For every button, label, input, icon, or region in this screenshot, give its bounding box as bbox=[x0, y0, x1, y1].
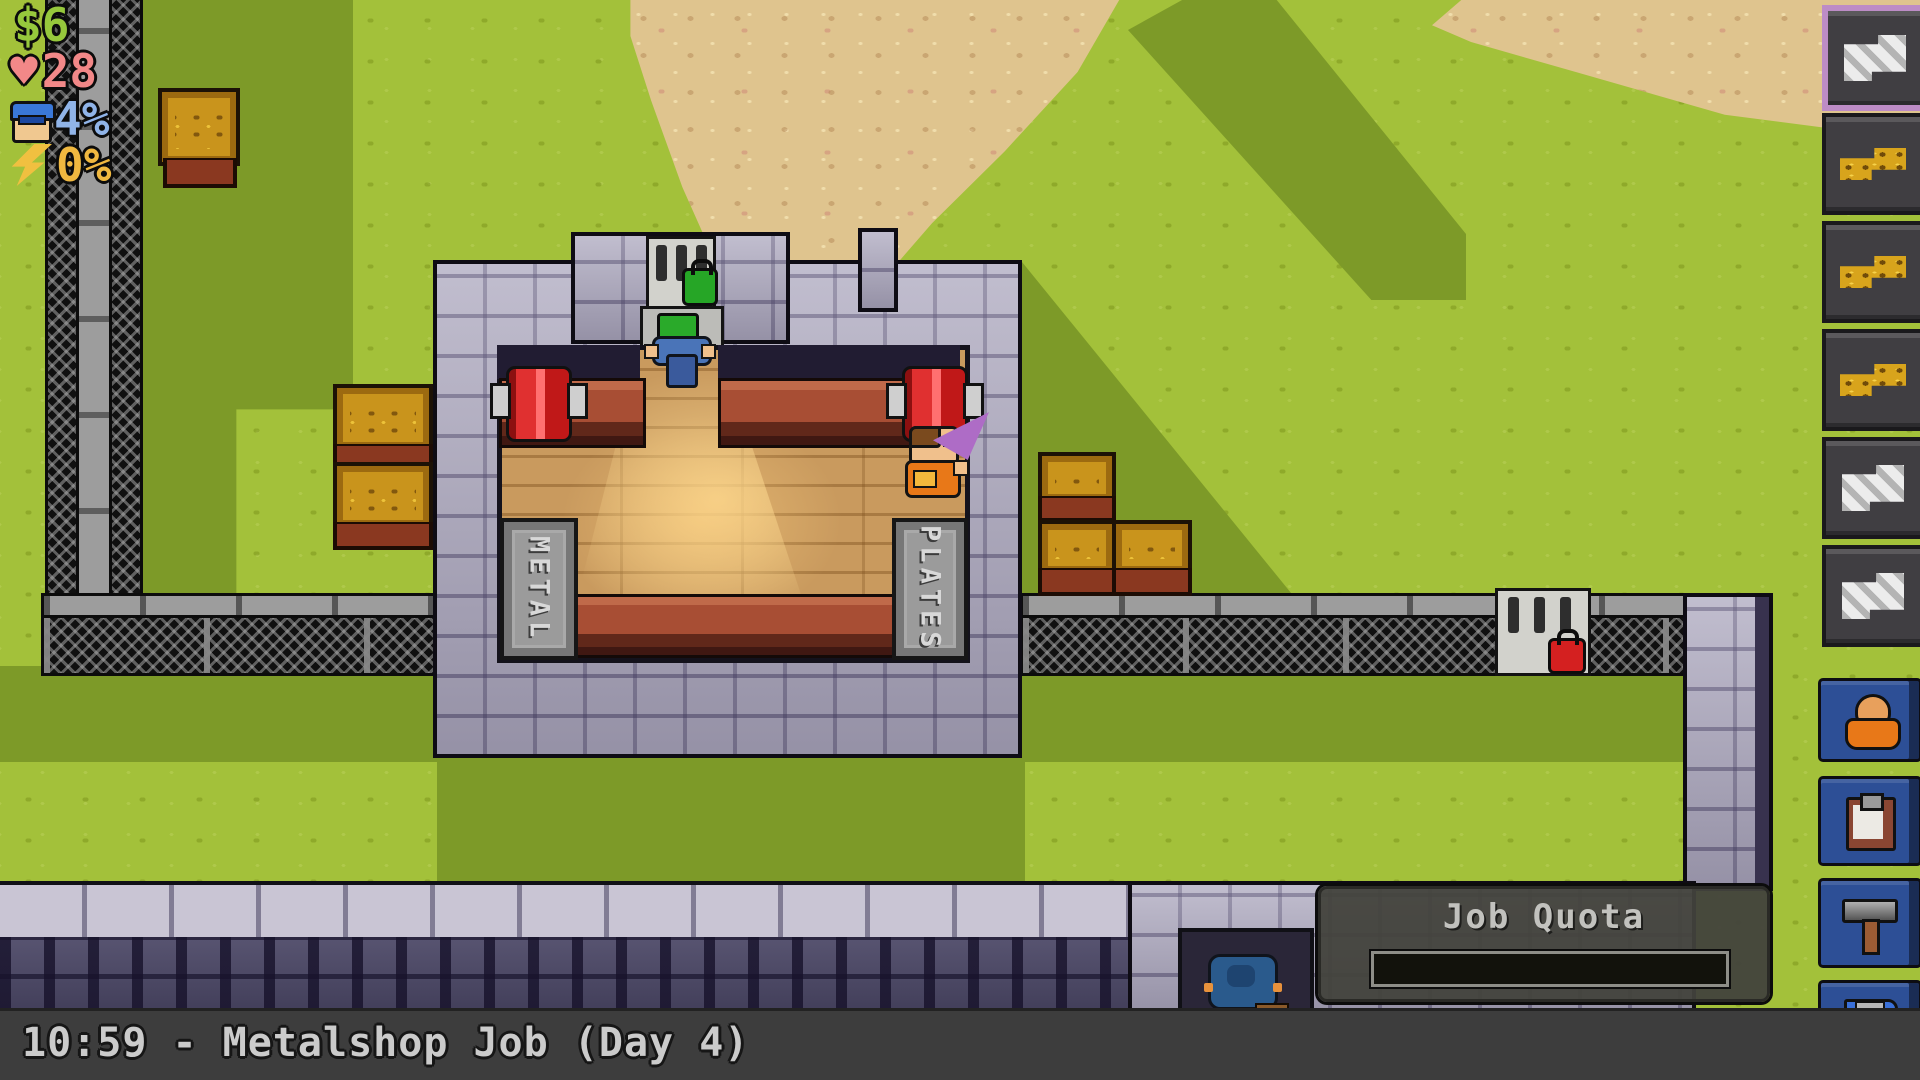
cliff-shadow-diagonal bbox=[1128, 0, 1466, 300]
crate-pallet bbox=[1112, 568, 1192, 596]
building-shadow-bottom bbox=[437, 754, 1025, 883]
inventory-item bbox=[1840, 364, 1906, 396]
money-value: $6 bbox=[14, 2, 69, 48]
status-text: 10:59 - Metalshop Job (Day 4) bbox=[0, 1011, 1920, 1075]
inventory-slot-3[interactable] bbox=[1822, 221, 1920, 323]
job-clipboard-button[interactable] bbox=[1818, 776, 1920, 866]
inventory-item bbox=[1842, 465, 1904, 511]
status-bar: 10:59 - Metalshop Job (Day 4) bbox=[0, 1011, 1920, 1080]
prisoner-button[interactable] bbox=[1818, 678, 1920, 762]
inventory-item bbox=[1844, 35, 1906, 81]
job-quota-panel: Job Quota bbox=[1318, 886, 1770, 1002]
player-hair bbox=[909, 426, 941, 448]
green-padlock-icon bbox=[682, 268, 718, 306]
inventory-item bbox=[1840, 148, 1906, 180]
inventory-slot-2[interactable] bbox=[1822, 113, 1920, 215]
sign-plates: PLATES bbox=[892, 518, 968, 660]
guard-icon bbox=[10, 99, 50, 139]
fence-shadow-bottom-a bbox=[0, 666, 440, 762]
lightning-icon bbox=[10, 144, 52, 186]
inventory-slot-6[interactable] bbox=[1822, 545, 1920, 647]
job-quota-title: Job Quota bbox=[1321, 897, 1767, 937]
game-viewport: METAL PLATES $6 ♥ 28 bbox=[0, 0, 1920, 1080]
guard-sprite bbox=[1208, 954, 1278, 1010]
hud-money: $6 bbox=[10, 2, 69, 48]
hammer-icon bbox=[1842, 895, 1898, 951]
worktable-bottom bbox=[570, 594, 902, 658]
job-quota-bar bbox=[1371, 951, 1729, 987]
crate-pallet bbox=[1038, 568, 1116, 596]
npc-worker bbox=[646, 334, 714, 386]
player-hand bbox=[953, 460, 969, 476]
inventory-item bbox=[1840, 256, 1906, 288]
hud-health: ♥ 28 bbox=[10, 48, 97, 94]
crate-pallet bbox=[333, 522, 433, 550]
clipboard-icon bbox=[1846, 793, 1894, 849]
fence-mesh bbox=[112, 0, 140, 604]
hud-guard-heat: 4% bbox=[10, 96, 109, 142]
crate bbox=[333, 462, 433, 530]
inventory-slot-4[interactable] bbox=[1822, 329, 1920, 431]
door-bar bbox=[656, 245, 667, 281]
guard-alcove bbox=[1178, 928, 1314, 1017]
crate bbox=[333, 384, 433, 452]
heart-icon: ♥ bbox=[10, 48, 38, 94]
guard-heat-value: 4% bbox=[54, 96, 109, 142]
door-bar bbox=[1534, 597, 1545, 633]
inventory-slot-1[interactable] bbox=[1822, 5, 1920, 111]
stone-wall-right bbox=[1683, 593, 1773, 891]
player-belt bbox=[913, 470, 937, 488]
inventory-item bbox=[1842, 573, 1904, 619]
crate bbox=[158, 88, 240, 166]
sign-plates-label: PLATES bbox=[915, 525, 946, 653]
red-padlock-icon bbox=[1548, 638, 1586, 674]
prisoner-icon bbox=[1842, 692, 1898, 748]
sign-metal: METAL bbox=[500, 518, 578, 660]
crate-pallet bbox=[163, 158, 237, 188]
energy-value: 0% bbox=[56, 142, 111, 188]
fence-mesh-b bbox=[1020, 615, 1694, 676]
bottom-wall-top bbox=[0, 881, 1132, 941]
sign-metal-label: METAL bbox=[524, 536, 555, 642]
door-bar bbox=[1508, 597, 1519, 633]
crate-pallet bbox=[1038, 496, 1116, 522]
wall-bump-right bbox=[858, 228, 898, 312]
craft-button[interactable] bbox=[1818, 878, 1920, 968]
metal-press-left[interactable] bbox=[506, 366, 572, 442]
bottom-wall-brick bbox=[0, 937, 1132, 1016]
fence-mesh-a bbox=[41, 615, 447, 676]
inventory-slot-5[interactable] bbox=[1822, 437, 1920, 539]
health-value: 28 bbox=[42, 48, 97, 94]
fence-shadow-bottom-b bbox=[1022, 666, 1688, 762]
hud-energy: 0% bbox=[10, 142, 111, 188]
door-bar bbox=[1560, 597, 1571, 633]
